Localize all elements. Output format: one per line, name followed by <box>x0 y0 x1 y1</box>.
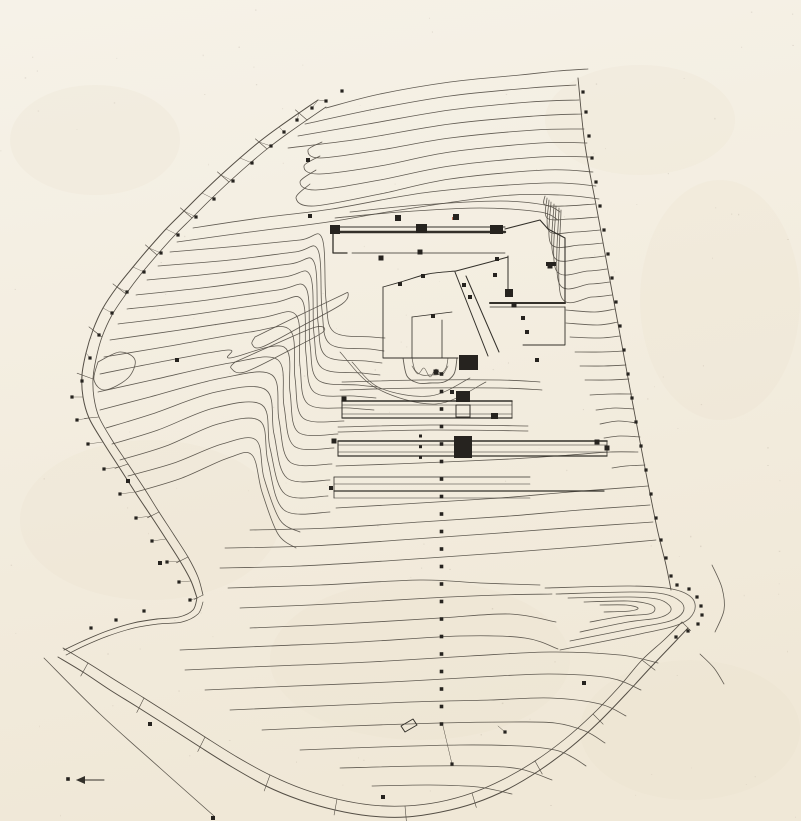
site-plan-drawing <box>0 0 801 821</box>
paper-background <box>0 0 801 821</box>
site-plan-scan <box>0 0 801 821</box>
